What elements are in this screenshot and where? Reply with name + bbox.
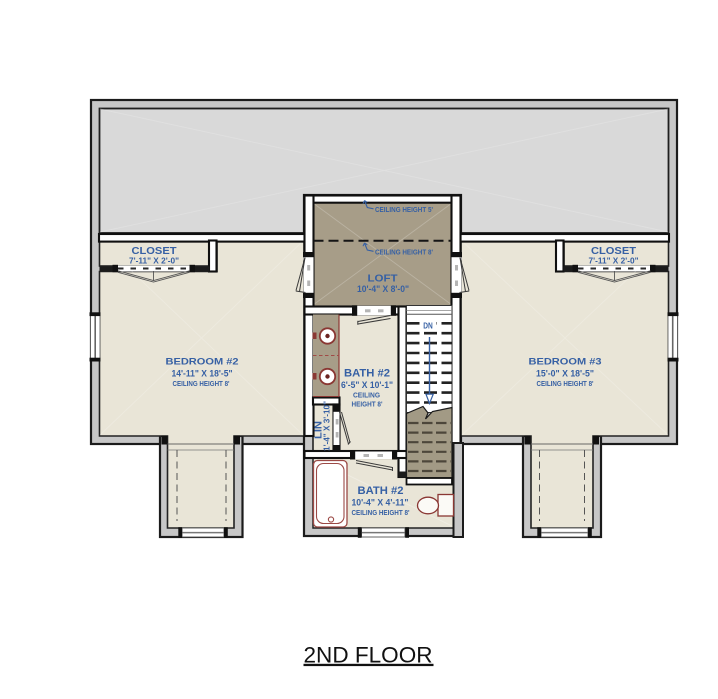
svg-text:LOFT: LOFT	[368, 273, 399, 285]
svg-text:14'-11" X 18'-5": 14'-11" X 18'-5"	[172, 369, 233, 379]
svg-text:HEIGHT 8': HEIGHT 8'	[352, 402, 383, 409]
svg-text:BATH #2: BATH #2	[358, 485, 404, 497]
svg-text:BEDROOM #3: BEDROOM #3	[529, 357, 602, 368]
svg-text:6'-5" X 10'-1": 6'-5" X 10'-1"	[341, 380, 393, 391]
svg-text:CEILING: CEILING	[353, 393, 381, 400]
svg-text:10'-4" X 8'-0": 10'-4" X 8'-0"	[357, 284, 409, 294]
svg-text:CEILING HEIGHT 8': CEILING HEIGHT 8'	[173, 379, 230, 388]
svg-text:CEILING HEIGHT 8': CEILING HEIGHT 8'	[352, 508, 410, 517]
svg-text:10'-4" X 4'-11": 10'-4" X 4'-11"	[352, 498, 409, 509]
svg-text:7'-11" X 2'-0": 7'-11" X 2'-0"	[589, 256, 639, 266]
svg-text:CEILING HEIGHT 8': CEILING HEIGHT 8'	[375, 248, 433, 257]
svg-text:BATH #2: BATH #2	[344, 368, 390, 380]
svg-text:CEILING HEIGHT 5': CEILING HEIGHT 5'	[375, 205, 433, 214]
svg-text:CEILING HEIGHT 8': CEILING HEIGHT 8'	[537, 379, 594, 388]
svg-text:1'-4" X 3'-10": 1'-4" X 3'-10"	[323, 401, 332, 451]
svg-text:DN: DN	[423, 322, 433, 331]
svg-text:15'-0" X 18'-5": 15'-0" X 18'-5"	[536, 369, 594, 379]
svg-text:BEDROOM #2: BEDROOM #2	[166, 357, 239, 368]
svg-text:2ND FLOOR: 2ND FLOOR	[304, 643, 433, 668]
svg-text:7'-11" X 2'-0": 7'-11" X 2'-0"	[129, 256, 179, 266]
